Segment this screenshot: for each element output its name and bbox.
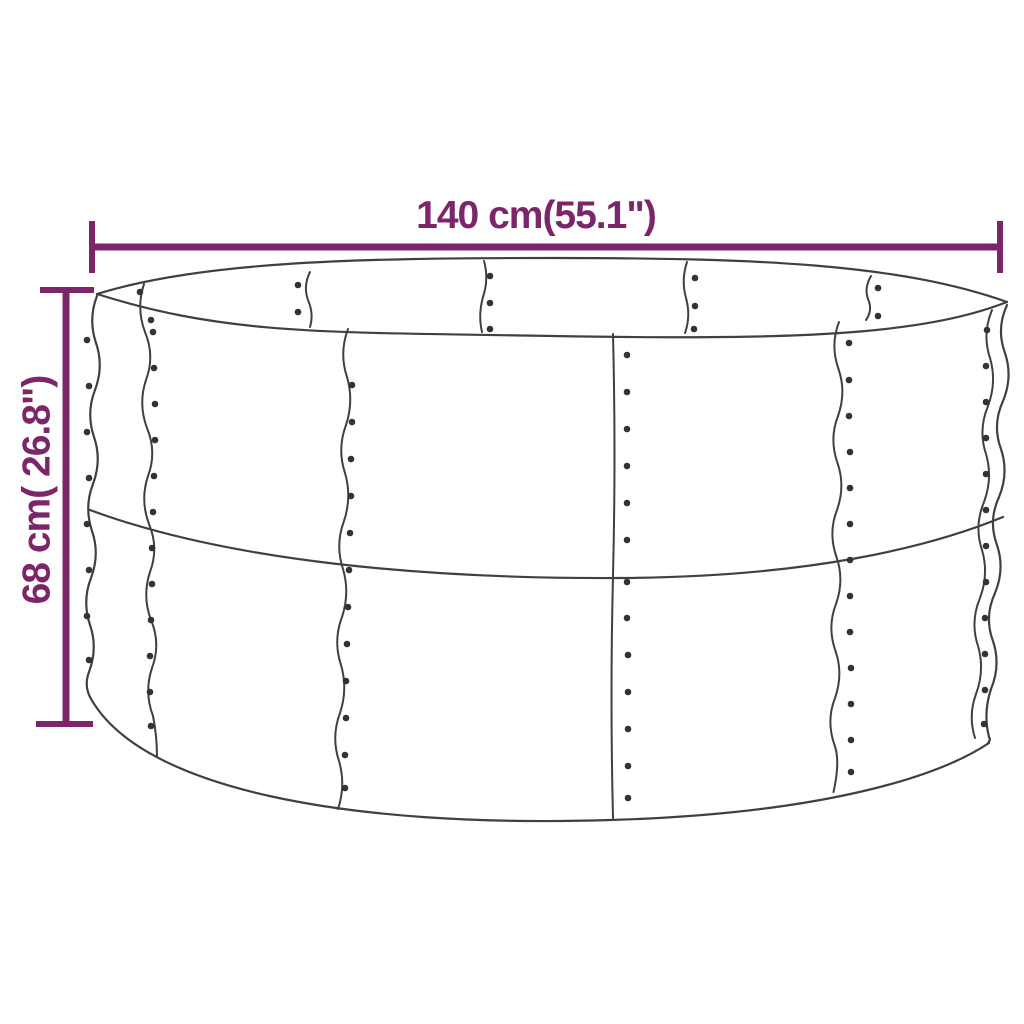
bed-outline	[86, 258, 1008, 821]
rim-back-arc	[97, 258, 1007, 302]
width-dimension-label: 140 cm(55.1")	[80, 196, 992, 235]
rim-front-arc	[97, 294, 1007, 337]
left-edge	[86, 296, 100, 697]
back-seam-1	[306, 272, 312, 327]
back-seam-2	[480, 261, 486, 332]
dimension-lines	[36, 221, 1000, 724]
right-edge	[986, 305, 1008, 743]
raised-bed-drawing	[0, 0, 1024, 1024]
seam-center	[612, 334, 615, 818]
back-seam-4	[866, 276, 871, 320]
seam-left	[140, 284, 157, 757]
panel-seams	[140, 261, 993, 818]
seam-mid-right	[830, 322, 842, 792]
height-dimension-label: 68 cm( 26.8")	[18, 376, 57, 605]
product-diagram: 140 cm(55.1") 68 cm( 26.8")	[0, 0, 1024, 1024]
bottom-arc	[90, 697, 989, 821]
back-seam-3	[684, 262, 689, 333]
middle-seam	[90, 510, 1003, 578]
rivet-dots	[84, 273, 991, 802]
